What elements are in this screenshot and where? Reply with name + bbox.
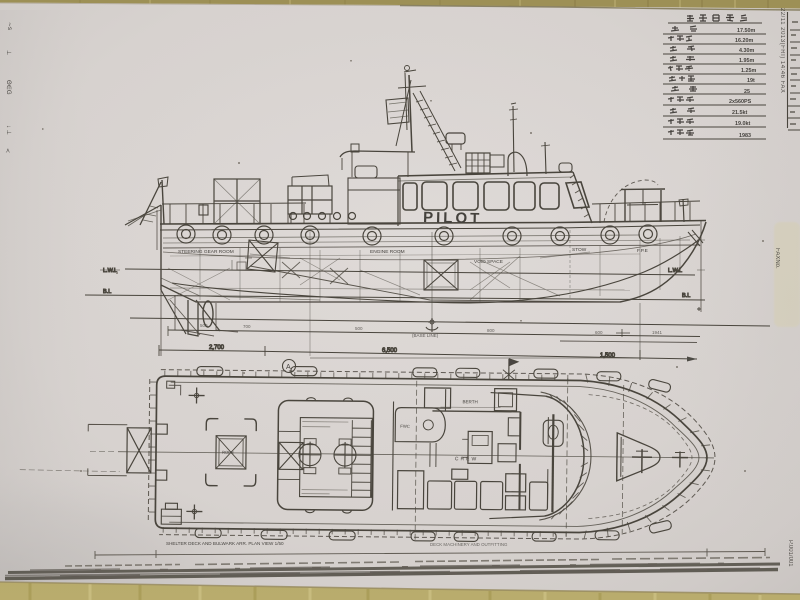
svg-text:1.25m: 1.25m xyxy=(741,68,756,74)
svg-text:F.P.E: F.P.E xyxy=(637,248,648,254)
svg-text:1941: 1941 xyxy=(652,330,663,335)
svg-text:B.L: B.L xyxy=(103,289,111,295)
svg-text:19t: 19t xyxy=(747,78,755,84)
svg-text:1.95m: 1.95m xyxy=(739,58,754,64)
svg-text:STEERING GEAR ROOM: STEERING GEAR ROOM xyxy=(178,249,234,255)
svg-text:700: 700 xyxy=(243,324,251,329)
svg-text:1983: 1983 xyxy=(739,133,751,139)
svg-text:∼s: ∼s xyxy=(6,22,12,30)
svg-text:B.L: B.L xyxy=(682,293,690,299)
svg-text:L.W.L: L.W.L xyxy=(103,268,117,274)
svg-text:P.001/001: P.001/001 xyxy=(787,540,793,567)
svg-text:21.5kt: 21.5kt xyxy=(732,110,747,116)
svg-text:(BASE LINE): (BASE LINE) xyxy=(412,333,439,338)
svg-text:25: 25 xyxy=(744,89,750,95)
svg-text:800: 800 xyxy=(487,328,495,333)
svg-text:FAXNo.: FAXNo. xyxy=(774,248,780,269)
svg-text:DECK MACHINERY AND OUTFITTI: DECK MACHINERY AND OUTFITTING xyxy=(430,542,508,547)
svg-text:2x560PS: 2x560PS xyxy=(729,99,752,105)
svg-text:⊥: ⊥ xyxy=(5,50,12,55)
svg-text:A: A xyxy=(286,364,291,371)
svg-text:STOW: STOW xyxy=(572,247,587,253)
svg-text:ENGINE ROOM: ENGINE ROOM xyxy=(370,249,405,255)
svg-text:ROPE: ROPE xyxy=(222,450,234,455)
svg-text:500: 500 xyxy=(355,326,363,331)
svg-text:Θ∈G: Θ∈G xyxy=(5,80,12,95)
svg-text:16.20m: 16.20m xyxy=(735,38,753,44)
svg-text:22/11 2013(FRI) 14:46 FAX: 22/11 2013(FRI) 14:46 FAX xyxy=(779,8,785,93)
svg-text:BERTH: BERTH xyxy=(463,399,478,404)
svg-text:4.30m: 4.30m xyxy=(739,48,754,54)
svg-text:↓ ⊥: ↓ ⊥ xyxy=(5,125,12,135)
svg-text:500: 500 xyxy=(200,323,208,328)
svg-text:6,500: 6,500 xyxy=(382,348,398,354)
svg-text:SHELTER DECK AND BULWARK A: SHELTER DECK AND BULWARK ARR. PLAN VIEW … xyxy=(166,541,284,546)
svg-text:≺: ≺ xyxy=(4,148,10,153)
svg-text:VOID SPACE: VOID SPACE xyxy=(474,259,503,265)
svg-text:600: 600 xyxy=(595,330,603,335)
svg-text:2,700: 2,700 xyxy=(209,345,225,351)
svg-text:FWC: FWC xyxy=(400,424,410,429)
svg-text:PILOT: PILOT xyxy=(423,209,483,227)
svg-text:19.0kt: 19.0kt xyxy=(735,121,750,127)
svg-text:17.50m: 17.50m xyxy=(737,28,755,34)
